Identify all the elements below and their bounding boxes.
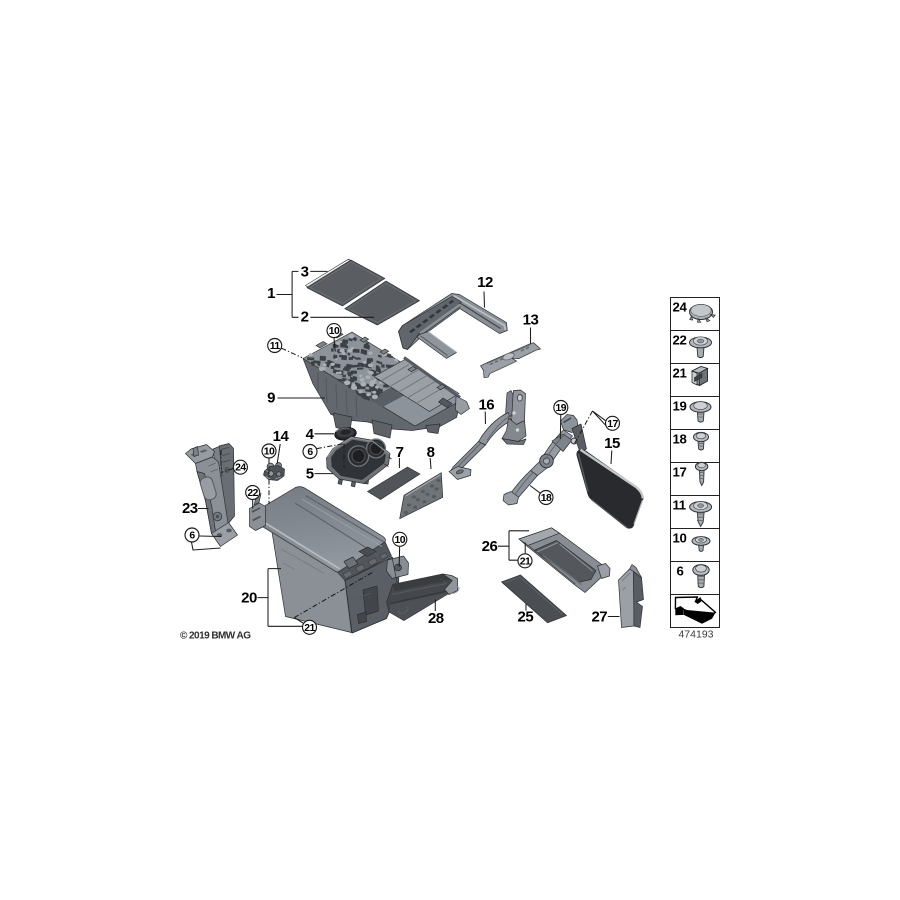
svg-text:9: 9 xyxy=(267,389,275,406)
svg-text:21: 21 xyxy=(304,623,315,634)
svg-text:4: 4 xyxy=(306,426,315,443)
svg-text:2: 2 xyxy=(301,308,309,325)
svg-text:21: 21 xyxy=(520,556,531,567)
svg-text:17: 17 xyxy=(607,419,618,430)
svg-text:19: 19 xyxy=(673,399,687,414)
svg-text:18: 18 xyxy=(673,432,687,447)
svg-text:7: 7 xyxy=(396,444,404,461)
svg-text:18: 18 xyxy=(541,493,552,504)
svg-text:19: 19 xyxy=(556,403,567,414)
svg-text:21: 21 xyxy=(673,366,687,381)
svg-text:13: 13 xyxy=(523,311,539,328)
svg-text:12: 12 xyxy=(477,274,493,291)
svg-text:26: 26 xyxy=(482,538,498,555)
svg-text:22: 22 xyxy=(247,488,258,499)
svg-text:1: 1 xyxy=(267,285,275,302)
svg-text:23: 23 xyxy=(182,500,198,517)
svg-text:25: 25 xyxy=(518,609,534,626)
svg-text:10: 10 xyxy=(673,531,687,546)
svg-text:8: 8 xyxy=(427,444,435,461)
svg-text:15: 15 xyxy=(604,435,620,452)
svg-text:3: 3 xyxy=(301,263,309,280)
svg-text:24: 24 xyxy=(673,300,688,315)
svg-text:16: 16 xyxy=(478,397,494,414)
svg-text:5: 5 xyxy=(306,465,314,482)
svg-text:27: 27 xyxy=(591,609,607,626)
svg-text:10: 10 xyxy=(264,447,275,458)
svg-text:11: 11 xyxy=(673,498,686,513)
svg-text:24: 24 xyxy=(235,463,246,474)
svg-text:20: 20 xyxy=(241,589,257,606)
svg-text:28: 28 xyxy=(428,610,444,627)
svg-text:17: 17 xyxy=(673,465,687,480)
svg-text:10: 10 xyxy=(395,535,406,546)
svg-text:14: 14 xyxy=(273,428,290,445)
svg-text:11: 11 xyxy=(270,341,281,352)
svg-text:6: 6 xyxy=(189,531,195,542)
svg-text:6: 6 xyxy=(307,447,313,458)
svg-text:22: 22 xyxy=(673,333,687,348)
svg-text:10: 10 xyxy=(329,326,340,337)
svg-text:© 2019 BMW AG: © 2019 BMW AG xyxy=(180,631,251,642)
svg-text:6: 6 xyxy=(677,564,684,579)
svg-text:474193: 474193 xyxy=(678,629,713,641)
